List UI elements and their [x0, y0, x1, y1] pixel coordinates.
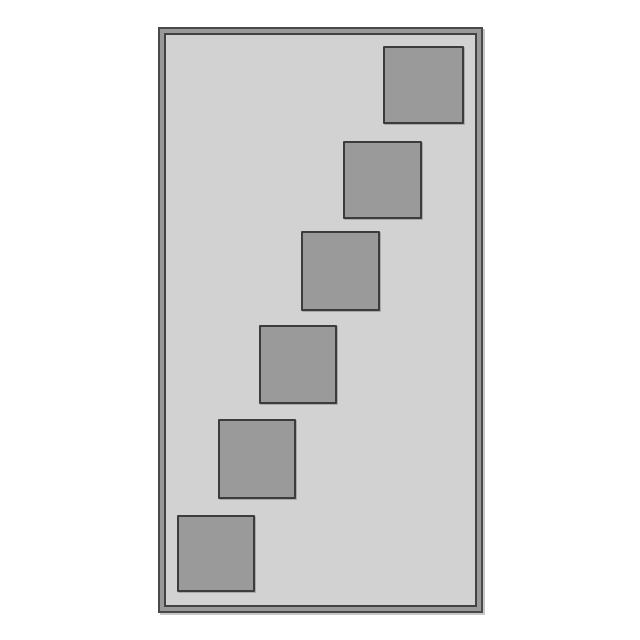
- step-square-6: [177, 515, 255, 592]
- diagram-canvas: [0, 0, 640, 640]
- staircase-squares-layer: [0, 0, 640, 640]
- step-square-2: [343, 141, 422, 219]
- step-square-4: [259, 325, 337, 404]
- step-square-3: [301, 231, 380, 311]
- step-square-1: [383, 46, 464, 124]
- step-square-5: [218, 419, 296, 499]
